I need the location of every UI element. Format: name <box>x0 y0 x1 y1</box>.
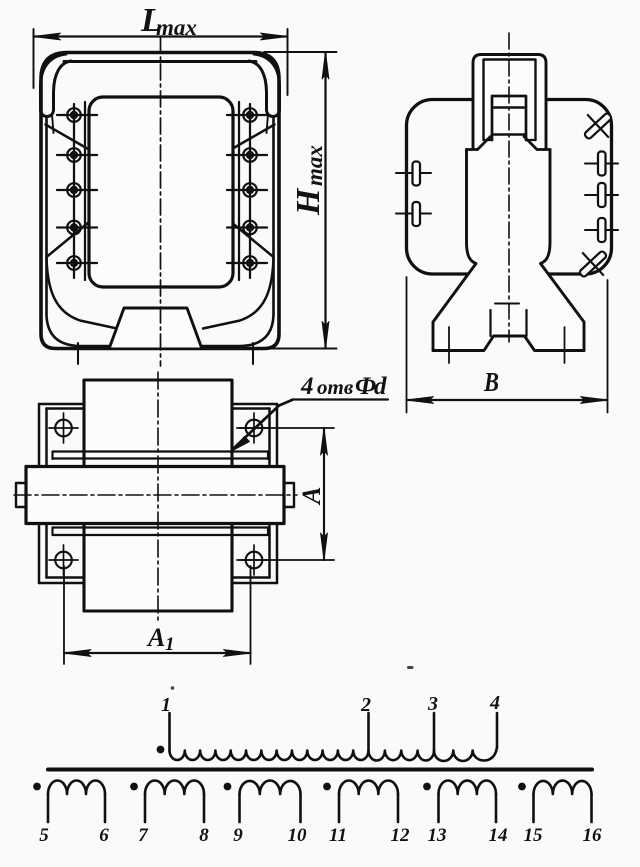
svg-text:14: 14 <box>489 825 508 846</box>
svg-text:max: max <box>302 145 327 186</box>
svg-text:8: 8 <box>199 825 209 846</box>
svg-text:4: 4 <box>300 373 314 400</box>
svg-text:5: 5 <box>39 825 49 846</box>
svg-text:H: H <box>290 187 327 216</box>
svg-text:4: 4 <box>489 692 500 714</box>
svg-text:16: 16 <box>583 825 603 846</box>
svg-text:1: 1 <box>165 634 175 655</box>
svg-text:3: 3 <box>427 693 438 715</box>
svg-text:A: A <box>146 623 165 652</box>
svg-text:d: d <box>374 373 387 400</box>
svg-text:1: 1 <box>161 694 171 716</box>
svg-text:В: В <box>483 367 499 397</box>
svg-text:11: 11 <box>329 825 347 846</box>
svg-text:отв: отв <box>317 375 354 399</box>
svg-text:7: 7 <box>138 825 149 846</box>
svg-text:15: 15 <box>524 825 544 846</box>
svg-text:12: 12 <box>391 825 411 846</box>
svg-text:A: A <box>297 487 326 506</box>
svg-text:2: 2 <box>360 694 371 716</box>
svg-text:13: 13 <box>428 825 447 846</box>
svg-text:10: 10 <box>288 825 308 846</box>
svg-text:9: 9 <box>233 825 243 846</box>
svg-text:6: 6 <box>99 825 109 846</box>
